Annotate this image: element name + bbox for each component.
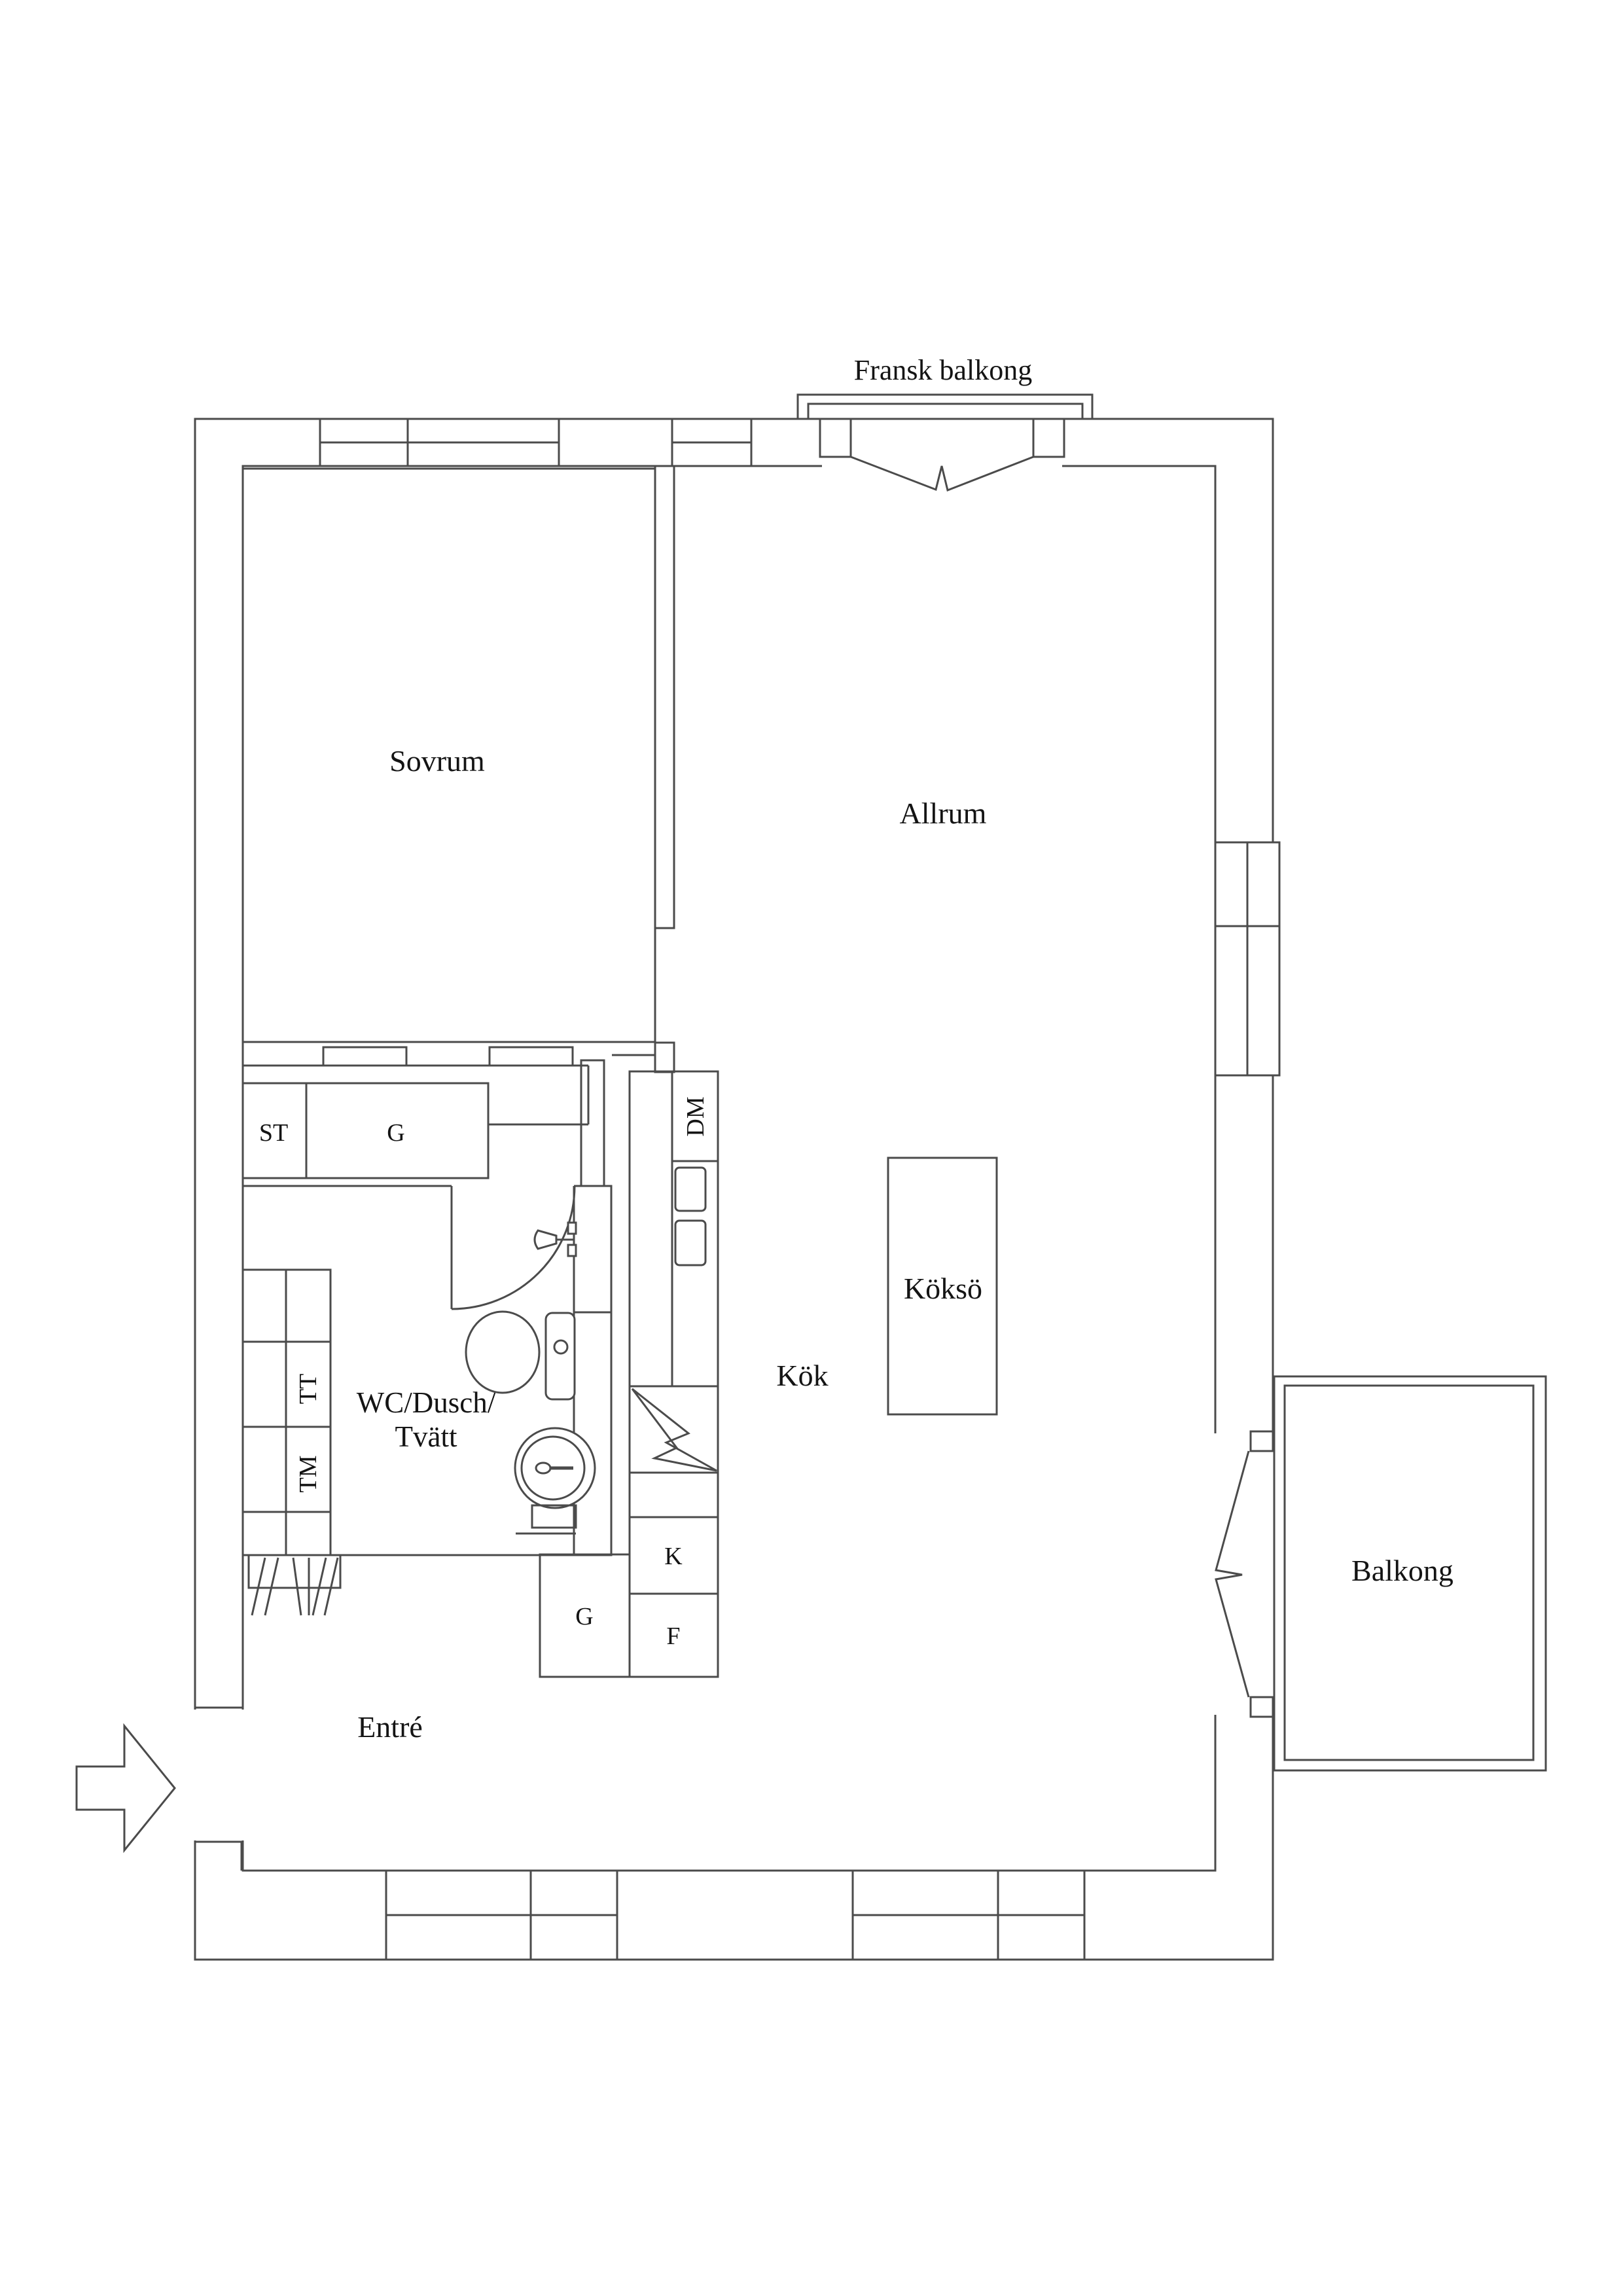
sliding-door-track-1	[323, 1047, 406, 1066]
divider-wall	[655, 466, 674, 928]
label-g-wardrobe: G	[387, 1119, 404, 1147]
label-frys: F	[666, 1623, 680, 1650]
bathroom-door-arc	[452, 1186, 575, 1309]
balcony-door-opening	[1211, 1433, 1277, 1715]
label-kok: Kök	[776, 1359, 828, 1392]
label-wc-line2: Tvätt	[395, 1420, 457, 1453]
kitchen-counter	[630, 1071, 718, 1517]
label-entre: Entré	[357, 1710, 423, 1744]
label-g-hall: G	[575, 1603, 593, 1630]
bathroom	[243, 1186, 611, 1555]
label-sovrum: Sovrum	[389, 744, 485, 778]
sliding-door-track-2	[490, 1047, 573, 1066]
entrance-opening	[191, 1710, 247, 1840]
coat-rack-icon	[249, 1555, 340, 1615]
outer-walls	[195, 419, 1273, 1960]
label-wc-line1: WC/Dusch/	[357, 1386, 496, 1419]
french-balcony-opening	[822, 415, 1062, 470]
window-bottom-left	[386, 1871, 617, 1960]
stove-lightning-icon	[632, 1389, 717, 1471]
wall-stub-kitchen	[655, 1043, 674, 1072]
label-balkong: Balkong	[1351, 1554, 1454, 1587]
label-fransk-balkong: Fransk balkong	[854, 354, 1033, 386]
sink-bowl-2	[675, 1221, 705, 1265]
window-right	[1215, 842, 1279, 1075]
wall-stub-hall	[581, 1060, 604, 1186]
sink-bowl-1	[675, 1168, 705, 1211]
window-bottom-right	[853, 1871, 1084, 1960]
label-kokso: Köksö	[904, 1272, 982, 1305]
floor-plan-drawing: Fransk balkong Sovrum Allrum ST G DM TT …	[0, 0, 1623, 2296]
entrance-arrow-icon	[77, 1726, 175, 1850]
label-kyl: K	[664, 1543, 683, 1570]
label-allrum: Allrum	[900, 797, 987, 830]
label-st: ST	[259, 1119, 288, 1147]
french-balcony-jamb-left	[820, 419, 851, 457]
french-balcony-jamb-right	[1033, 419, 1064, 457]
sink-icon	[515, 1428, 595, 1508]
floor-plan-page: Fransk balkong Sovrum Allrum ST G DM TT …	[0, 0, 1623, 2296]
label-tt: TT	[294, 1374, 322, 1404]
label-tm: TM	[294, 1456, 322, 1493]
wardrobe-band	[243, 1047, 588, 1178]
label-dm: DM	[682, 1096, 709, 1136]
